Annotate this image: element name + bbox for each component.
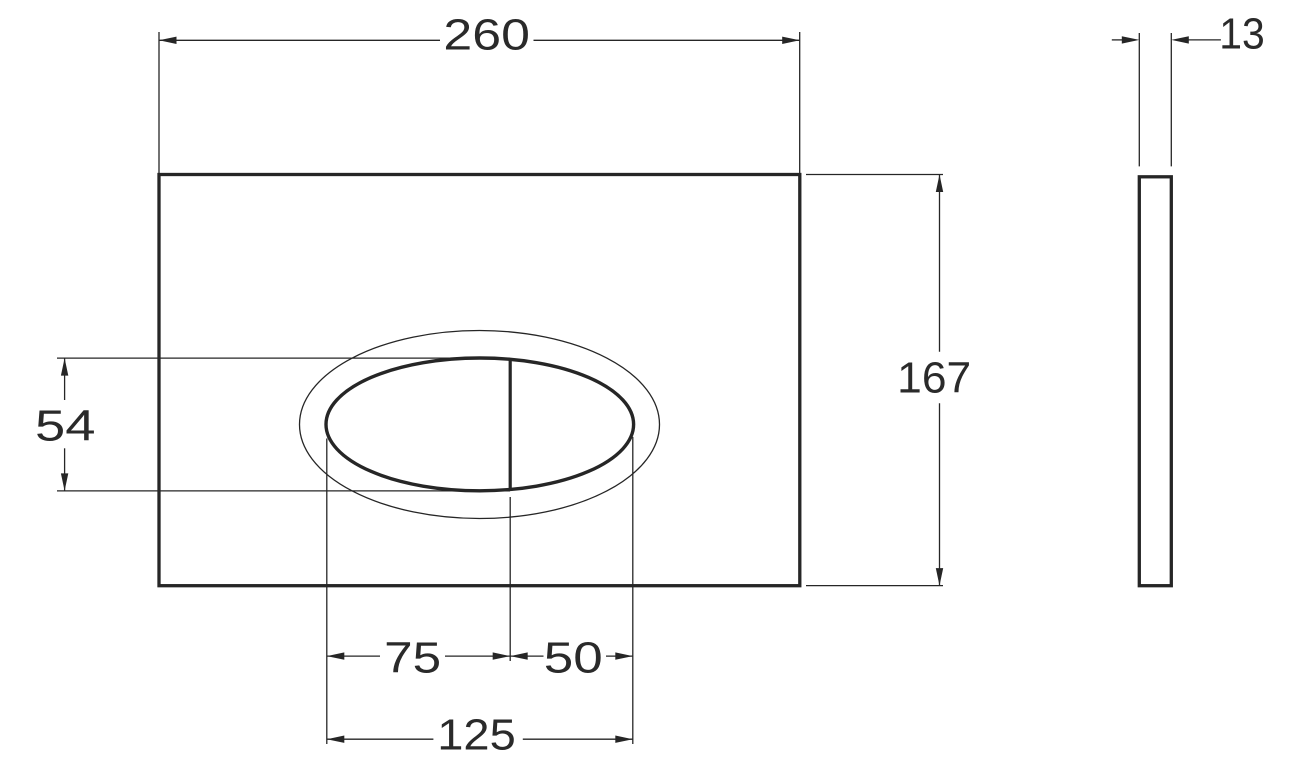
svg-text:50: 50 xyxy=(544,635,603,683)
svg-text:167: 167 xyxy=(897,354,971,402)
svg-text:54: 54 xyxy=(35,403,96,451)
svg-text:125: 125 xyxy=(437,712,516,760)
svg-text:75: 75 xyxy=(384,635,441,683)
svg-text:260: 260 xyxy=(443,12,530,60)
svg-text:13: 13 xyxy=(1219,10,1265,58)
